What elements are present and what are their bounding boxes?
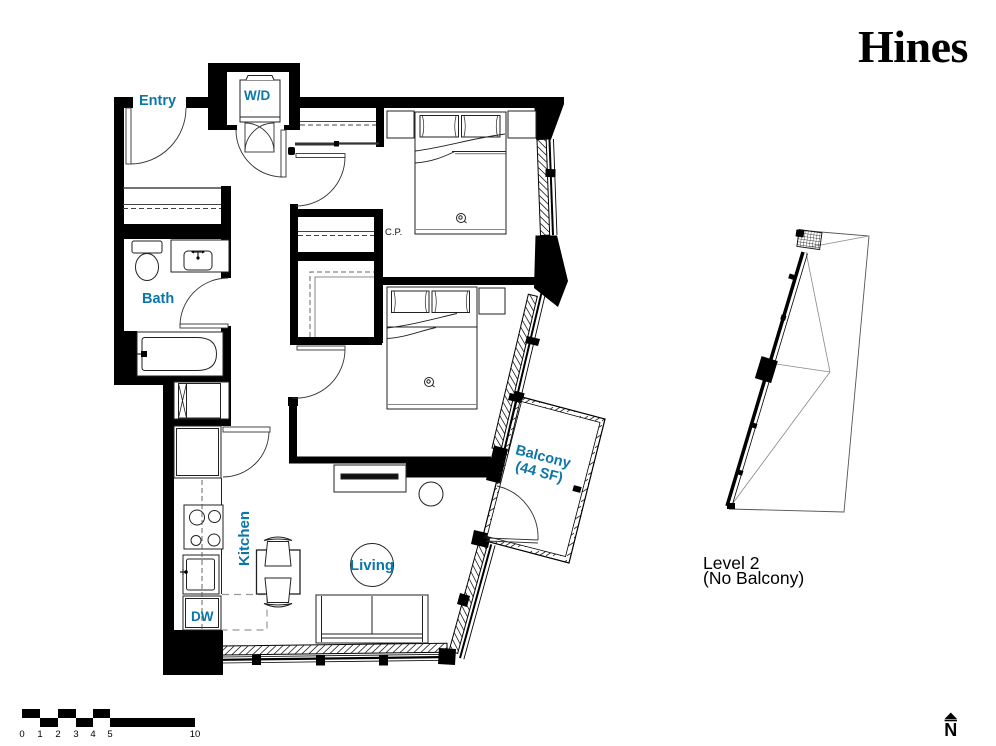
svg-text:4: 4 — [90, 729, 95, 740]
svg-text:5: 5 — [107, 729, 112, 740]
svg-text:Hines: Hines — [858, 21, 968, 72]
svg-text:W/D: W/D — [244, 88, 270, 103]
svg-text:(No Balcony): (No Balcony) — [703, 568, 804, 588]
svg-text:C.P.: C.P. — [385, 227, 402, 238]
svg-text:0: 0 — [19, 729, 24, 740]
svg-text:Living: Living — [350, 557, 394, 574]
svg-text:2: 2 — [55, 729, 60, 740]
svg-text:10: 10 — [190, 729, 201, 740]
svg-text:DW: DW — [191, 609, 214, 624]
svg-text:1: 1 — [37, 729, 42, 740]
svg-text:3: 3 — [73, 729, 78, 740]
svg-text:N: N — [944, 720, 957, 740]
svg-text:Entry: Entry — [139, 93, 176, 109]
svg-text:Bath: Bath — [142, 291, 174, 307]
svg-text:Kitchen: Kitchen — [236, 511, 253, 566]
